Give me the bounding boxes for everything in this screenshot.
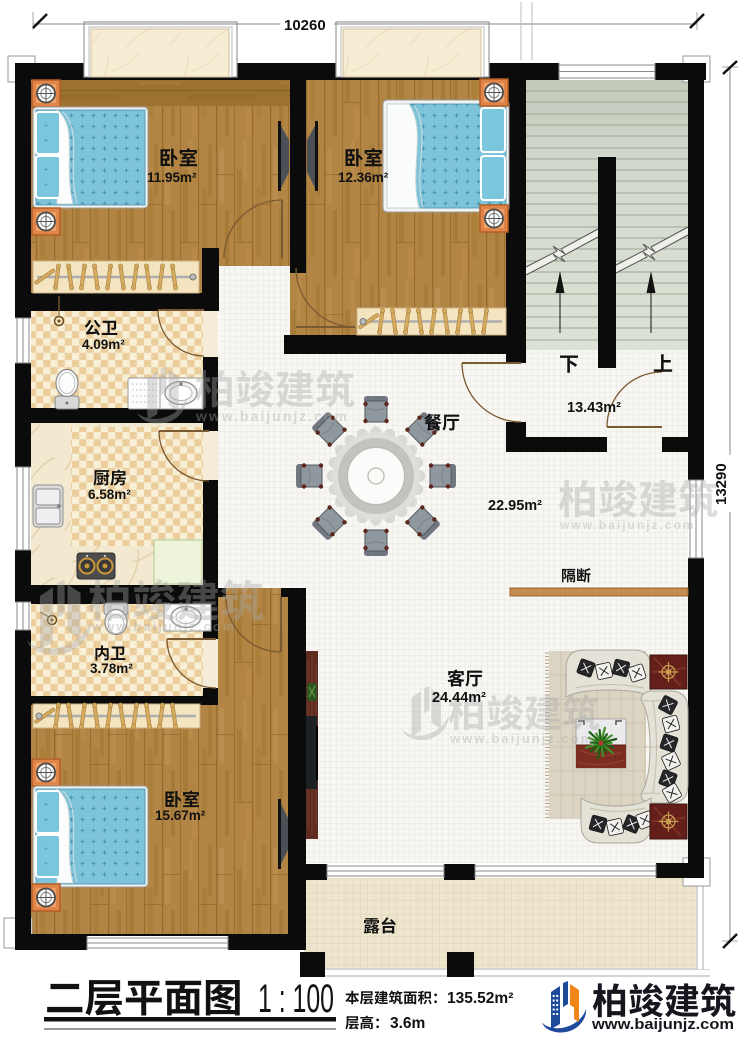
svg-text:3.78m²: 3.78m² [90,661,133,676]
svg-text:24.44m²: 24.44m² [432,690,486,706]
svg-text:www.baijunjz.com: www.baijunjz.com [195,408,349,424]
svg-text:6.58m²: 6.58m² [88,487,131,502]
svg-text:13290: 13290 [713,463,730,505]
svg-text:12.36m²: 12.36m² [338,170,389,185]
svg-text:www.baijunjz.com: www.baijunjz.com [91,619,236,634]
svg-text:13.43m²: 13.43m² [567,400,621,416]
svg-text:22.95m²: 22.95m² [488,498,542,514]
svg-text:1 : 100: 1 : 100 [258,977,334,1021]
svg-text:3.6m: 3.6m [390,1015,425,1032]
svg-text:10260: 10260 [284,17,326,34]
svg-text:11.95m²: 11.95m² [147,170,197,185]
svg-text:www.baijunjz.com: www.baijunjz.com [559,518,696,532]
svg-text:135.52m²: 135.52m² [447,990,513,1007]
svg-text:15.67m²: 15.67m² [155,808,206,823]
svg-text:www.baijunjz.com: www.baijunjz.com [591,1017,734,1033]
svg-text:www.baijunjz.com: www.baijunjz.com [449,731,594,746]
svg-text:4.09m²: 4.09m² [82,337,125,352]
